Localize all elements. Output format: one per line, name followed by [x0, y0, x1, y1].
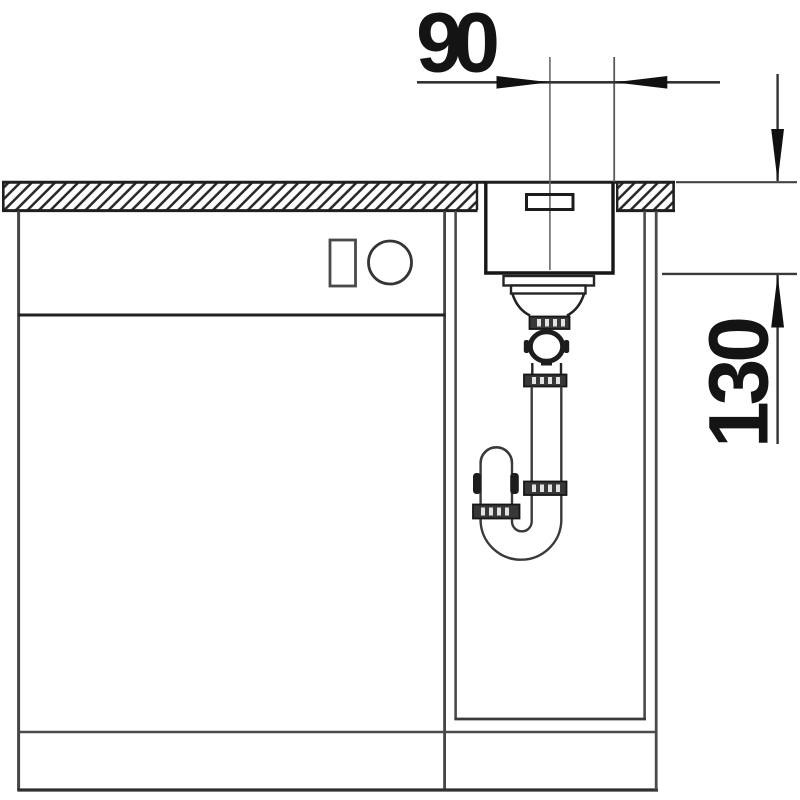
svg-text:90: 90 [416, 0, 500, 90]
svg-text:130: 130 [692, 316, 786, 448]
